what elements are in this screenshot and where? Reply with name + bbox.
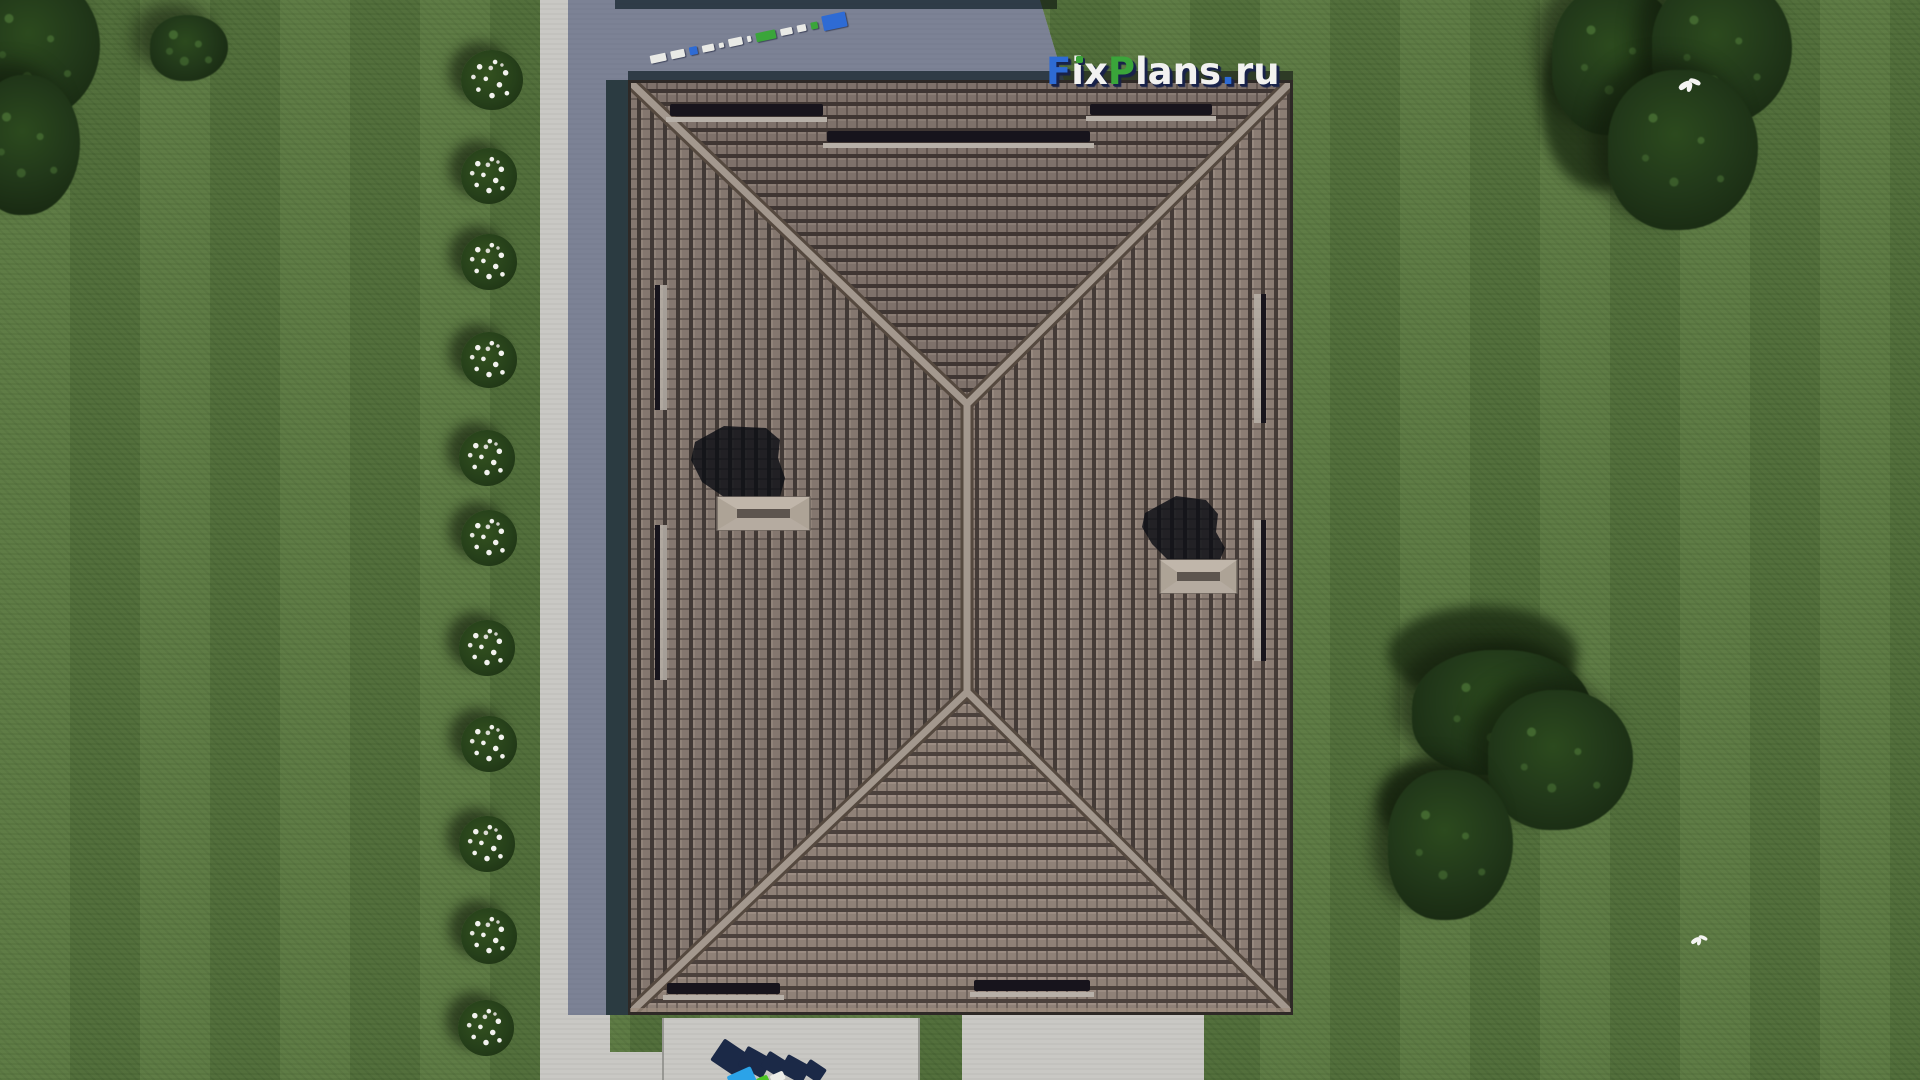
flower-bush	[461, 50, 523, 110]
flower-bush	[461, 234, 517, 290]
chimney-flue	[1177, 572, 1220, 581]
logo-block	[650, 53, 667, 64]
snow-guard-rail	[970, 992, 1094, 997]
bird-icon	[1678, 74, 1704, 96]
flower-bush	[461, 510, 517, 566]
snow-guard-bar	[667, 983, 780, 994]
snow-guard-bar	[1261, 520, 1266, 661]
terrace-pad-small	[610, 1052, 664, 1080]
flower-bush	[461, 148, 517, 204]
snow-guard-bar	[655, 285, 660, 410]
snow-guard-bar	[974, 980, 1090, 991]
terrace-pad-right	[962, 1012, 1204, 1080]
logo-block	[718, 42, 724, 48]
snow-guard-rail	[666, 117, 827, 122]
logo-block	[670, 49, 685, 60]
snow-guard-rail	[660, 525, 667, 680]
flower-bush	[459, 816, 515, 872]
flower-bush	[461, 716, 517, 772]
logo-i-dot	[1076, 56, 1083, 63]
snow-guard-bar	[1261, 294, 1266, 423]
logo-letter-f: F	[1046, 50, 1071, 93]
snow-guard-bar	[1090, 104, 1212, 115]
walkway	[540, 0, 610, 1080]
logo-block	[702, 43, 715, 52]
aerial-render: FixPlans.ru	[0, 0, 1920, 1080]
chimney-flue	[737, 509, 790, 518]
logo-letters-ru: ru	[1235, 50, 1280, 93]
logo-letter-p: P	[1108, 50, 1135, 93]
pad-seam	[918, 1018, 920, 1080]
roof-fascia	[630, 1008, 1291, 1012]
roof-svg	[628, 80, 1293, 1015]
flower-bush	[459, 430, 515, 486]
logo-block	[728, 36, 743, 47]
logo-letter-x: x	[1084, 50, 1108, 93]
logo-dot: .	[1221, 50, 1235, 93]
snow-guard-bar	[670, 104, 823, 116]
snow-guard-rail	[660, 285, 667, 410]
logo-block	[821, 11, 848, 31]
bird-icon	[1691, 932, 1706, 944]
flower-bush	[458, 1000, 514, 1056]
flower-bush	[459, 620, 515, 676]
logo-block	[796, 23, 806, 32]
logo-block	[810, 21, 818, 29]
flower-bush	[461, 908, 517, 964]
logo-block	[755, 29, 776, 42]
logo-block	[689, 46, 698, 55]
snow-guard-rail	[1254, 520, 1261, 661]
flower-bush	[461, 332, 517, 388]
logo-letters-lans: lans	[1135, 50, 1221, 93]
snow-guard-rail	[1086, 116, 1216, 121]
bird-body	[1686, 82, 1693, 93]
snow-guard-bar	[827, 131, 1090, 142]
logo-block	[780, 26, 793, 35]
snow-guard-bar	[655, 525, 660, 680]
snow-guard-rail	[663, 995, 784, 1000]
snow-guard-rail	[823, 143, 1094, 148]
logo-block	[747, 36, 752, 43]
hedge-left	[606, 80, 628, 1015]
pad-seam	[662, 1018, 664, 1080]
snow-guard-rail	[1254, 294, 1261, 423]
